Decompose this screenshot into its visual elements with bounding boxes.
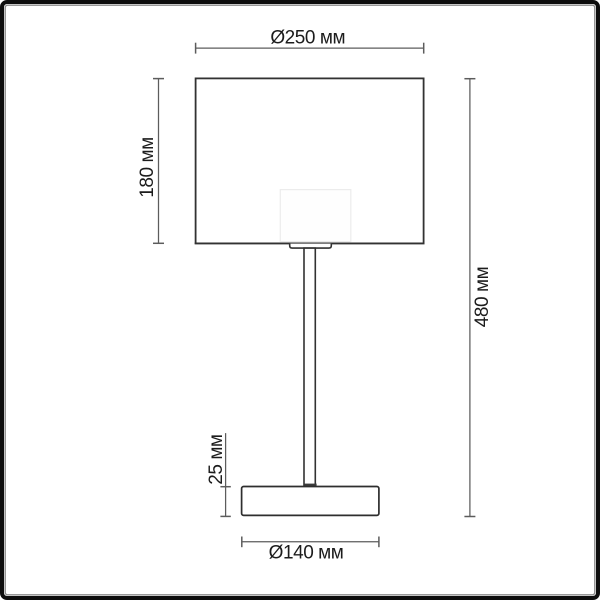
svg-text:25 мм: 25 мм (206, 434, 227, 484)
svg-text:180 мм: 180 мм (137, 137, 158, 197)
svg-text:Ø140 мм: Ø140 мм (269, 543, 344, 564)
svg-text:480 мм: 480 мм (472, 267, 493, 327)
svg-text:Ø250 мм: Ø250 мм (270, 27, 345, 48)
